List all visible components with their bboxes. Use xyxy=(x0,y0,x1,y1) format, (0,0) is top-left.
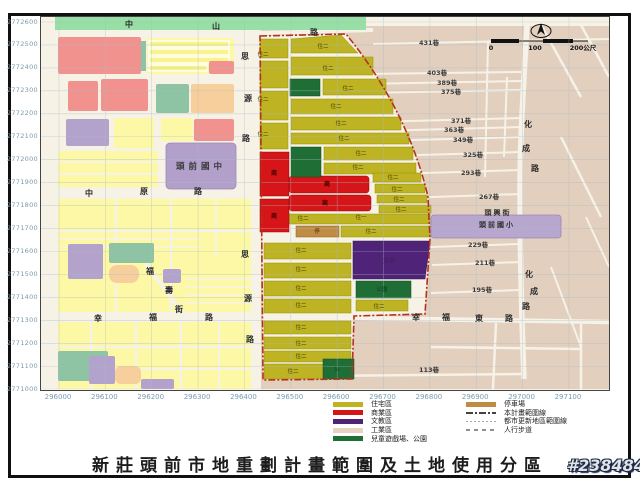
map-label-lane: 431巷 xyxy=(419,38,440,47)
map-label-road: 東 xyxy=(475,313,483,323)
legend-swatch xyxy=(466,402,496,407)
map-label-scale: 0 xyxy=(489,44,494,52)
map-label-road: 路 xyxy=(505,313,514,323)
map-label-zone: 住二 xyxy=(287,367,299,375)
map-label-red: 商 xyxy=(271,212,277,220)
legend-line-sample xyxy=(466,429,496,431)
map-label-place: 頭興街 xyxy=(485,208,512,217)
map-label-road: 源 xyxy=(244,293,252,303)
map-label-zone: 住二 xyxy=(393,195,405,203)
legend-item: 文教區 xyxy=(333,417,463,426)
map-label-lane: 195巷 xyxy=(472,285,493,294)
map-label-road: 源 xyxy=(244,93,252,103)
legend-swatch xyxy=(333,410,363,415)
map-label-road: 街 xyxy=(174,304,183,314)
legend-swatch xyxy=(333,436,363,441)
map-label-place: 頭前國小 xyxy=(479,220,515,229)
map-label-road: 路 xyxy=(531,163,540,173)
map-label-lane: 375巷 xyxy=(441,87,462,96)
map-label-red: 商 xyxy=(322,199,328,207)
y-axis-label: 2772200 xyxy=(6,109,38,117)
map-label-zone: 住二 xyxy=(342,84,354,92)
y-axis-label: 2772300 xyxy=(6,86,38,94)
map-label-purple: 文中 xyxy=(383,257,395,265)
map-label-red: 商 xyxy=(324,180,330,188)
x-axis-label: 296200 xyxy=(134,393,168,401)
green-strip xyxy=(55,17,366,30)
y-axis-label: 2772000 xyxy=(6,155,38,163)
map-label-zone: 住二 xyxy=(338,134,350,142)
map-label-road: 中 xyxy=(125,19,133,29)
map-label-school: 頭前國中 xyxy=(176,161,226,172)
map-label-lane: 267巷 xyxy=(479,192,500,201)
map-label-lane: 293巷 xyxy=(461,168,482,177)
legend-item: 住宅區 xyxy=(333,400,463,409)
map-label-zone: 住一 xyxy=(355,213,367,221)
legend-zone-column: 住宅區商業區文教區工業區兒童遊戲場、公園 xyxy=(333,400,463,443)
map-label-zone: 住二 xyxy=(295,284,307,292)
legend-line-column: 停車場本計畫範圍線都市更新地區範圍線人行步道 xyxy=(466,400,626,434)
map-label-road: 化 xyxy=(525,269,533,279)
map-label-scale: 200公尺 xyxy=(570,44,597,52)
map-label-lane: 349巷 xyxy=(453,135,474,144)
y-axis-label: 2772600 xyxy=(6,18,38,26)
map-label-road: 思 xyxy=(241,52,249,61)
x-axis-label: 296300 xyxy=(180,393,214,401)
map-label-red: 商 xyxy=(271,169,277,177)
map-label-road: 山 xyxy=(212,21,220,31)
y-axis-labels: 2772600277250027724002772300277220027721… xyxy=(0,0,40,400)
legend-swatch xyxy=(333,428,363,433)
map-label-zone: 住二 xyxy=(295,352,307,360)
map-label-zone: 住二 xyxy=(322,64,334,72)
legend-label: 人行步道 xyxy=(504,425,532,435)
map-label-lane: 363巷 xyxy=(444,125,465,134)
map-label-zone: 住二 xyxy=(317,42,329,50)
map-canvas: 中山路思源路中原路思源路幸福路福壽街幸福東路化成路化成路431巷403巷389巷… xyxy=(41,17,609,389)
map-label-road: 成 xyxy=(522,143,530,153)
y-axis-label: 2771600 xyxy=(6,247,38,255)
legend-item: 停車場 xyxy=(466,400,626,409)
x-axis-label: 296100 xyxy=(87,393,121,401)
map-label-road: 路 xyxy=(242,133,251,143)
x-axis-label: 296500 xyxy=(273,393,307,401)
map-label-zone: 住二 xyxy=(391,185,403,193)
legend-swatch xyxy=(333,402,363,407)
map-label-zone: 住二 xyxy=(295,246,307,254)
x-axis-label: 296400 xyxy=(226,393,260,401)
map-label-road: 路 xyxy=(522,301,531,311)
legend-swatch xyxy=(333,419,363,424)
y-axis-label: 2771200 xyxy=(6,339,38,347)
map-label-lane: 371巷 xyxy=(451,116,472,125)
map-label-green: 公 xyxy=(334,367,340,373)
map-label-road: 福 xyxy=(145,266,154,276)
map-area: 中山路思源路中原路思源路幸福路福壽街幸福東路化成路化成路431巷403巷389巷… xyxy=(40,16,610,391)
map-label-lane: 229巷 xyxy=(468,240,489,249)
map-label-road: 壽 xyxy=(165,285,173,295)
map-label-zone: 住二 xyxy=(257,130,269,138)
map-label-road: 路 xyxy=(194,186,203,196)
y-axis-label: 2771100 xyxy=(6,362,38,370)
map-label-zone: 住二 xyxy=(297,214,309,222)
y-axis-label: 2771500 xyxy=(6,270,38,278)
map-label-road: 福 xyxy=(441,312,450,322)
y-axis-label: 2771300 xyxy=(6,316,38,324)
map-label-road: 化 xyxy=(524,119,532,129)
map-label-road: 幸 xyxy=(412,312,420,322)
map-label-road: 路 xyxy=(246,334,255,344)
map-label-lane: 113巷 xyxy=(419,365,440,374)
map-label-green: 公園 xyxy=(376,286,388,293)
map-label-zone: 住二 xyxy=(352,163,364,171)
map-label-road: 福 xyxy=(148,312,157,322)
map-label-zone: 住二 xyxy=(295,265,307,273)
legend: 住宅區商業區文教區工業區兒童遊戲場、公園 停車場本計畫範圍線都市更新地區範圍線人… xyxy=(333,400,625,448)
map-label-road: 幸 xyxy=(94,313,102,323)
map-label-lane: 325巷 xyxy=(463,150,484,159)
map-label-zone: 住二 xyxy=(330,102,342,110)
y-axis-label: 2771900 xyxy=(6,178,38,186)
map-label-lane: 211巷 xyxy=(475,258,496,267)
map-label-lane: 389巷 xyxy=(437,78,458,87)
y-axis-label: 2772100 xyxy=(6,132,38,140)
y-axis-label: 2771700 xyxy=(6,224,38,232)
map-label-zone: 住二 xyxy=(335,119,347,127)
map-label-road: 路 xyxy=(205,312,214,322)
legend-item: 都市更新地區範圍線 xyxy=(466,417,626,426)
map-label-zone: 住二 xyxy=(257,95,269,103)
map-label-road: 思 xyxy=(241,250,249,259)
map-label-zone: 住二 xyxy=(295,323,307,331)
map-label-zone: 住二 xyxy=(373,302,385,310)
map-title: 新莊頭前市地重劃計畫範圍及土地使用分區 xyxy=(0,451,640,476)
legend-label: 兒童遊戲場、公園 xyxy=(371,434,427,444)
map-label-scale: 100 xyxy=(528,44,542,52)
y-axis-label: 2772500 xyxy=(6,40,38,48)
map-label-road: 路 xyxy=(310,27,319,37)
map-label-road: 中 xyxy=(85,188,93,198)
map-label-lane: 403巷 xyxy=(427,68,448,77)
y-axis-label: 2771000 xyxy=(6,385,38,393)
map-label-zone: 住二 xyxy=(395,205,407,213)
y-axis-label: 2771400 xyxy=(6,293,38,301)
map-label-zone: 住二 xyxy=(295,339,307,347)
x-axis-label: 296000 xyxy=(41,393,75,401)
y-axis-label: 2771800 xyxy=(6,201,38,209)
legend-item: 兒童遊戲場、公園 xyxy=(333,434,463,443)
map-label-zone: 住二 xyxy=(387,173,399,181)
map-label-brown: 停 xyxy=(314,227,320,235)
map-label-zone: 住二 xyxy=(257,50,269,58)
map-label-zone: 住二 xyxy=(365,227,377,235)
y-axis-label: 2772400 xyxy=(6,63,38,71)
map-label-road: 原 xyxy=(140,187,148,196)
legend-item: 商業區 xyxy=(333,409,463,418)
legend-line-sample xyxy=(466,421,496,422)
legend-line-sample xyxy=(466,412,496,414)
legend-item: 人行步道 xyxy=(466,426,626,435)
map-label-zone: 住二 xyxy=(355,149,367,157)
map-label-zone: 住二 xyxy=(295,301,307,309)
watermark: #2384846 xyxy=(567,456,640,475)
page: 中山路思源路中原路思源路幸福路福壽街幸福東路化成路化成路431巷403巷389巷… xyxy=(0,0,640,481)
map-label-road: 成 xyxy=(530,286,538,296)
